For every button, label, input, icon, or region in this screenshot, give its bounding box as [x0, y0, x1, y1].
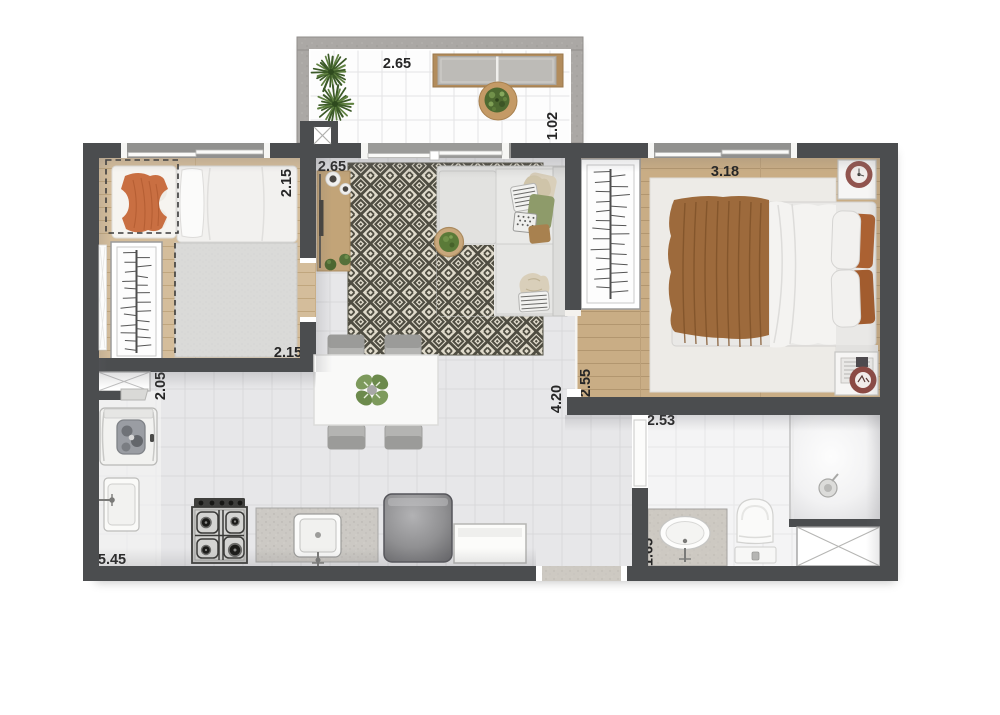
svg-text:1.02: 1.02: [545, 112, 561, 140]
svg-text:2.65: 2.65: [383, 56, 411, 72]
svg-text:2.15: 2.15: [279, 169, 295, 197]
svg-text:4.20: 4.20: [549, 385, 565, 413]
